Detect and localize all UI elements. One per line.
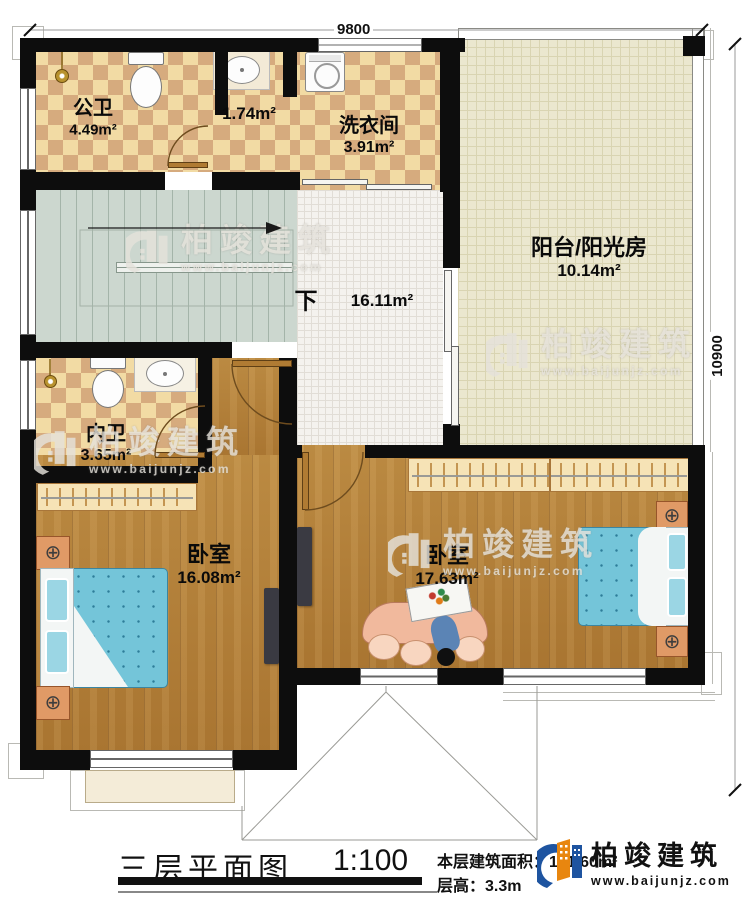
stair-railing [116, 262, 293, 273]
floor-height-value: 3.3m [485, 878, 521, 895]
company-logo-icon [537, 836, 587, 890]
wardrobe-bedroom1 [37, 483, 197, 511]
room-label-laundry: 洗衣间 3.91m² [339, 115, 399, 157]
lamp-icon: ⊕ [45, 543, 62, 563]
wall-segment [20, 172, 165, 190]
room-area: 3.91m² [339, 138, 399, 157]
floor-height-label: 层高： [437, 878, 485, 895]
nightstand: ⊕ [36, 536, 70, 570]
lamp-icon: ⊕ [664, 632, 681, 652]
sliding-door-laundry-panel [302, 179, 368, 185]
wall-segment [365, 445, 705, 458]
room-label-sunroom: 阳台/阳光房 10.14m² [531, 235, 647, 281]
outer-line-right-lower [712, 452, 713, 684]
washing-machine-icon [305, 52, 345, 92]
wall-segment [438, 668, 503, 685]
sink-icon [146, 360, 184, 387]
hall-floor [297, 190, 443, 445]
room-area: 10.14m² [531, 261, 647, 281]
wall-segment [443, 192, 460, 268]
sliding-door-balcony-panel [451, 346, 459, 426]
room-area: 3.65m² [81, 446, 132, 465]
room-name: 内卫 [81, 423, 132, 447]
pillow-icon [45, 630, 69, 674]
wall-segment [20, 342, 232, 358]
wall-corner-column [683, 36, 705, 56]
outer-line-right [710, 28, 711, 452]
room-area: 1.74m² [222, 104, 276, 124]
shower-drain-icon [55, 69, 69, 83]
wall-bedroom-partition [279, 358, 297, 757]
room-area: 16.08m² [177, 568, 240, 588]
drawing-scale: 1:100 [333, 844, 408, 878]
sofa-cushion [368, 634, 400, 660]
toilet-tank-icon [128, 52, 164, 65]
person-head [437, 648, 455, 666]
wall-segment [212, 172, 300, 190]
wall-segment [20, 750, 90, 770]
window-bedroom1-south [90, 750, 233, 768]
outer-line-bottom-a [503, 692, 715, 693]
wall-segment [646, 668, 705, 685]
floor-area-label: 本层建筑面积： [437, 854, 549, 871]
window-bathroom2-west [20, 360, 36, 430]
lower-terrace-floor [85, 770, 235, 803]
toilet-bowl-icon [92, 370, 124, 408]
wall-segment [283, 50, 297, 97]
pillow-icon [667, 533, 687, 571]
hall-area-label: 16.11m² [351, 291, 413, 311]
pillow-icon [45, 578, 69, 622]
title-underline-thin [118, 891, 437, 893]
bedroom1-entry-floor [212, 358, 279, 458]
wall-segment [20, 38, 318, 52]
floor-height-line: 层高：3.3m [437, 872, 521, 896]
wall-segment [688, 445, 705, 685]
pillow-icon [667, 577, 687, 617]
room-label-bedroom1: 卧室 16.08m² [177, 542, 240, 588]
wall-segment [440, 38, 460, 192]
room-label-bedroom2: 卧室 17.63m² [415, 543, 478, 589]
dimension-top: 9800 [334, 22, 373, 38]
room-area: 4.49m² [69, 121, 117, 139]
tv-icon [264, 588, 279, 664]
room-name: 卧室 [415, 543, 478, 569]
wall-segment [20, 38, 36, 88]
title-underline-bar [118, 877, 422, 885]
room-name: 洗衣间 [339, 115, 399, 139]
floorplan-canvas: ⊕ ⊕ ⊕ ⊕ 公卫 4.49m² 1.74m² 洗衣间 3.91m² 阳台/阳… [0, 0, 750, 902]
toilet-bowl-icon [130, 66, 162, 108]
room-name: 卧室 [177, 542, 240, 568]
room-label-private-bathroom: 内卫 3.65m² [81, 423, 132, 465]
wardrobe-bedroom2 [408, 458, 691, 492]
shower-drain-icon [44, 375, 57, 388]
wall-segment [20, 430, 36, 770]
company-logo-text: 柏竣建筑 www.baijunjz.com [591, 843, 731, 888]
blanket-fold [638, 527, 666, 626]
wardrobe-divider [549, 459, 551, 491]
door-leaf-bathroom-public [168, 162, 208, 168]
window-bathroom-west [20, 88, 36, 170]
nightstand: ⊕ [36, 686, 70, 720]
stairs-down-label: 下 [295, 287, 318, 314]
sunroom-wall-top [458, 28, 705, 40]
tv-icon [297, 527, 312, 606]
room-name: 公卫 [69, 97, 117, 121]
room-label-storage: 1.74m² [222, 104, 276, 124]
flower-decor [424, 586, 452, 608]
wardrobe-rail [41, 497, 193, 499]
nightstand: ⊕ [656, 626, 688, 657]
room-label-public-bathroom: 公卫 4.49m² [69, 97, 117, 138]
down-text: 下 [295, 287, 318, 314]
window-bedroom2-south-b [503, 668, 646, 685]
wall-segment [36, 466, 198, 483]
sink-icon [224, 56, 260, 84]
outer-line-bottom-b [503, 700, 715, 701]
lamp-icon: ⊕ [664, 506, 681, 526]
lamp-icon: ⊕ [45, 693, 62, 713]
window-stairs-west [20, 210, 36, 335]
sliding-door-laundry-panel [366, 184, 432, 190]
door-leaf-bathroom-private [155, 452, 205, 458]
room-area: 16.11m² [351, 291, 413, 311]
dimension-right: 10900 [710, 332, 726, 380]
wall-segment [233, 750, 297, 770]
sofa-cushion [400, 640, 432, 666]
room-name: 阳台/阳光房 [531, 235, 647, 261]
logo-url: www.baijunjz.com [591, 874, 731, 888]
window-bedroom2-south-a [360, 668, 438, 685]
logo-brand: 柏竣建筑 [591, 843, 731, 870]
sliding-door-balcony-panel [444, 270, 452, 352]
door-leaf-bedroom2 [302, 452, 309, 510]
door-leaf-bedroom1 [232, 360, 292, 367]
window-laundry-north [318, 38, 422, 52]
wall-segment [297, 668, 360, 685]
sunroom-wall-right [692, 28, 704, 450]
room-area: 17.63m² [415, 569, 478, 589]
